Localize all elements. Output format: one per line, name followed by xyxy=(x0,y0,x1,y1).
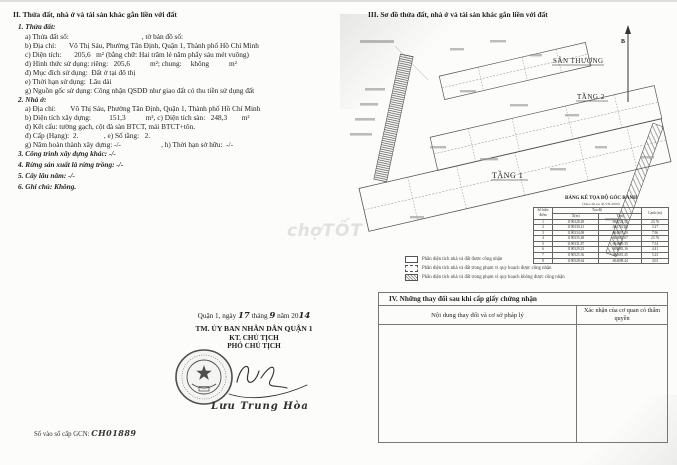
perennial-line: 5. Cây lâu năm: -/- xyxy=(18,171,353,182)
forest-line: 4. Rừng sản xuất là rừng trồng: -/- xyxy=(18,160,353,171)
rooftop-label: SÂN THƯỢNG xyxy=(553,57,604,65)
point-id: 8 xyxy=(534,258,553,264)
watermark-tot: TỐT xyxy=(322,221,363,241)
issue-date-line: Quận 1, ngày 17 tháng 9 năm 2014 xyxy=(140,311,368,321)
floor2-label: TẦNG 2 xyxy=(577,93,605,101)
legend-text: Phần diện tích nhà và đất trong phạm vi … xyxy=(422,266,551,271)
house-year-line: g) Năm hoàn thành xây dựng: -/- , h) Thờ… xyxy=(25,140,353,149)
legend-item-planning-not-recognized: Phần diện tích nhà và đất trong phạm vi … xyxy=(405,274,565,281)
scan-top-edge xyxy=(0,0,677,2)
signer-name: Lưu Trung Hòa xyxy=(190,401,330,412)
note-line: 6. Ghi chú: Không. xyxy=(18,182,353,193)
house-grade-line: đ) Cấp (Hạng): 2. , e) Số tầng: 2. xyxy=(25,131,353,140)
edge-length: 4.03 xyxy=(642,258,669,264)
certificate-scan-page: II. Thửa đất, nhà ở và tài sản khác gắn … xyxy=(0,0,677,465)
col-point-header: Số hiệu điểm xyxy=(534,207,553,219)
house-address-line: a) Địa chỉ: Võ Thị Sáu, Phường Tân Định,… xyxy=(25,104,353,113)
year-label: năm 20 xyxy=(277,312,298,320)
north-label: B xyxy=(621,39,625,45)
street-band xyxy=(374,54,413,182)
changes-column-header: Nội dung thay đổi và cơ sở pháp lý xyxy=(379,306,577,324)
house-heading: 2. Nhà ở: xyxy=(18,95,353,105)
parcel-heading: 1. Thửa đất: xyxy=(18,22,353,32)
legend-plain-swatch xyxy=(405,256,418,263)
gcn-handwritten-number: CH01889 xyxy=(91,428,136,438)
section-ii: II. Thửa đất, nhà ở và tài sản khác gắn … xyxy=(13,10,353,192)
house-area-line: b) Diện tích xây dựng: 151,3 m², c) Diện… xyxy=(25,113,353,122)
authority-line: TM. ỦY BAN NHÂN DÂN QUẬN 1 xyxy=(140,324,368,333)
north-arrow-icon: B xyxy=(621,25,631,102)
coord-row: 8 1190328.64 604698.44 4.03 xyxy=(534,258,669,264)
legend-hatched-swatch xyxy=(405,274,418,281)
confirmation-column-header: Xác nhận của cơ quan có thẩm quyền xyxy=(577,306,667,324)
signature-block: Quận 1, ngày 17 tháng 9 năm 2014 TM. ỦY … xyxy=(140,311,368,350)
legend-item-recognized: Phần diện tích nhà và đất được công nhận xyxy=(405,256,502,263)
month-label: tháng xyxy=(252,312,268,320)
parcel-area-line: c) Diện tích: 205,6 m² (bằng chữ: Hai tr… xyxy=(25,50,353,59)
kt-chu-tich-line: KT. CHỦ TỊCH xyxy=(140,334,368,342)
coord-x: 1190328.64 xyxy=(553,258,599,264)
signature-strokes xyxy=(225,352,310,400)
chotot-watermark: chợTỐT xyxy=(287,221,363,241)
parcel-term-line: e) Thời hạn sử dụng: Lâu dài xyxy=(25,77,353,86)
handwritten-day: 17 xyxy=(238,311,250,321)
parcel-number-line: a) Thửa đất số: , tờ bản đồ số: xyxy=(25,32,353,41)
legend-text: Phần diện tích nhà và đất được công nhận xyxy=(422,257,502,262)
coordinate-table-subtitle: (Theo hệ tọa độ VN-2000) xyxy=(533,202,669,206)
section-iv-table: IV. Những thay đổi sau khi cấp giấy chứn… xyxy=(378,292,668,443)
watermark-cho: chợ xyxy=(287,221,322,241)
handwritten-year: 14 xyxy=(298,311,310,321)
parcel-usage-form-line: d) Hình thức sử dụng: riêng: 205,6 m²; c… xyxy=(25,59,353,68)
section-ii-heading: II. Thửa đất, nhà ở và tài sản khác gắn … xyxy=(13,10,353,19)
floor1-label: TẦNG 1 xyxy=(492,170,523,180)
other-construction-line: 3. Công trình xây dựng khác: -/- xyxy=(18,149,353,160)
date-prefix: Quận 1, ngày xyxy=(198,312,237,320)
parcel-origin-line: g) Nguồn gốc sử dụng: Công nhận QSDĐ như… xyxy=(25,86,353,95)
confirmation-column-body xyxy=(577,325,667,442)
coord-y: 604698.44 xyxy=(599,258,642,264)
legend-dashed-swatch xyxy=(405,265,418,272)
gcn-label: Số vào sổ cấp GCN: xyxy=(34,431,91,438)
handwritten-month: 9 xyxy=(269,311,275,321)
changes-column-body xyxy=(379,325,577,442)
col-edge-header: Cạnh (m) xyxy=(642,207,669,219)
parcel-purpose-line: đ) Mục đích sử dụng: Đất ở tại đô thị xyxy=(25,68,353,77)
coordinate-table: BẢNG KÊ TỌA ĐỘ GÓC RANH (Theo hệ tọa độ … xyxy=(533,196,669,264)
section-iv-heading: IV. Những thay đổi sau khi cấp giấy chứn… xyxy=(379,293,667,306)
parcel-address-line: b) Địa chỉ: Võ Thị Sáu, Phường Tân Định,… xyxy=(25,41,353,50)
legend-item-planning-recognized: Phần diện tích nhà và đất trong phạm vi … xyxy=(405,265,551,272)
house-structure-line: d) Kết cấu: tường gạch, cột đà sàn BTCT,… xyxy=(25,122,353,131)
legend-text: Phần diện tích nhà và đất trong phạm vi … xyxy=(422,275,565,280)
gcn-number-line: Số vào sổ cấp GCN: CH01889 xyxy=(34,428,136,438)
